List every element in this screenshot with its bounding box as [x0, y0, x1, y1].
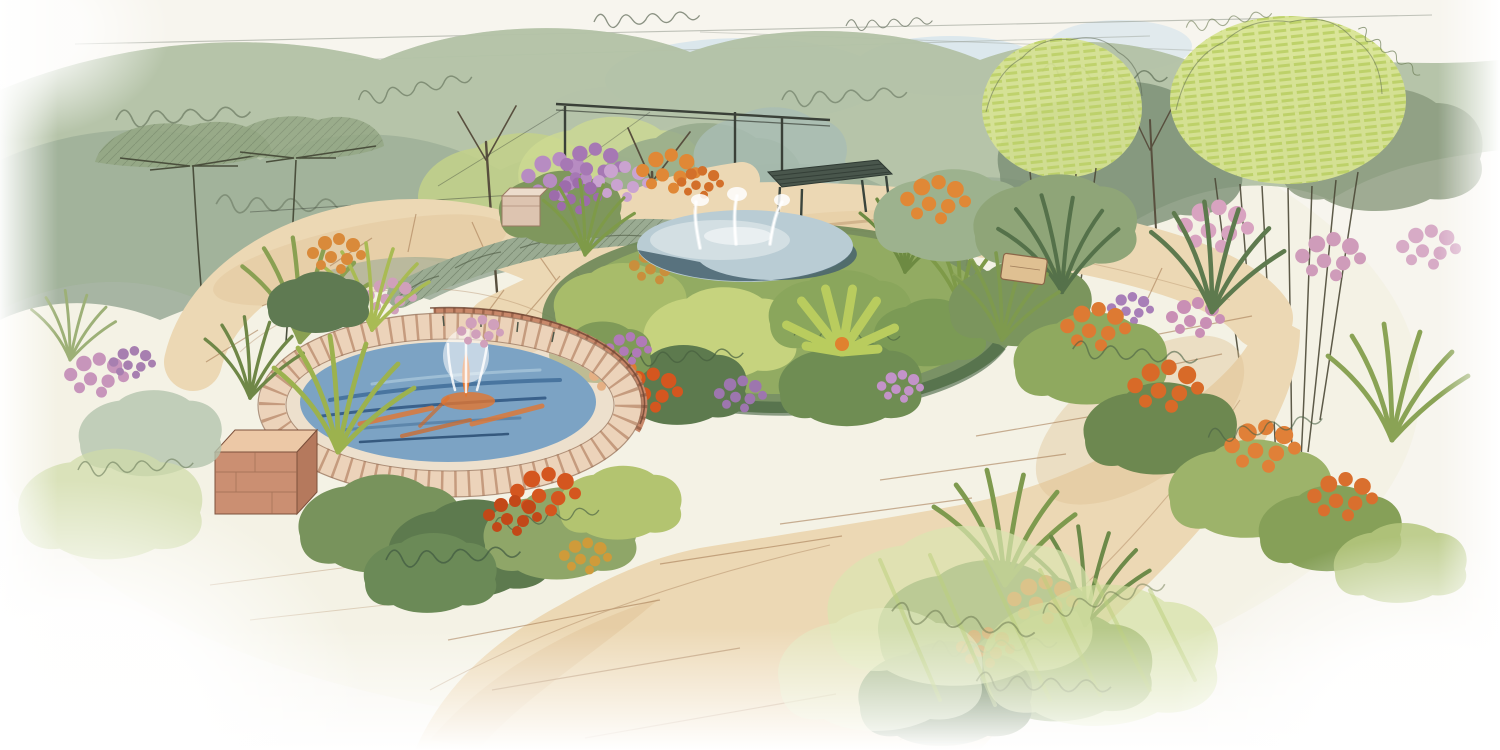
step-block — [1000, 253, 1047, 285]
brick-planter — [215, 430, 317, 514]
garden-sketch-canvas — [0, 0, 1500, 750]
garden-sketch-illustration — [0, 0, 1500, 750]
